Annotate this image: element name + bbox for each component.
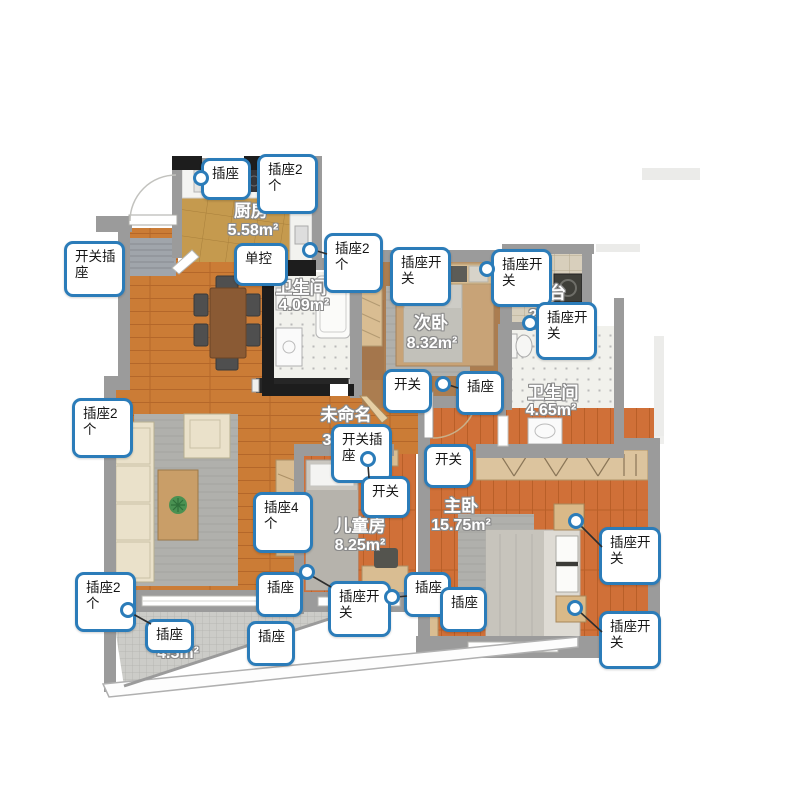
anchor-dot-3[interactable]: [481, 263, 494, 276]
callout-4-单控[interactable]: 单控: [234, 243, 288, 286]
callout-19-插座开关[interactable]: 插座开关: [328, 581, 391, 637]
callout-9-开关[interactable]: 开关: [383, 369, 432, 413]
callout-16-插座开关[interactable]: 插座开关: [599, 527, 661, 585]
callout-12-开关插座[interactable]: 开关插座: [331, 424, 392, 483]
callout-6-插座开关[interactable]: 插座开关: [390, 247, 451, 306]
callout-23-插座[interactable]: 插座: [256, 572, 303, 617]
anchor-dot-5[interactable]: [437, 378, 450, 391]
callout-5-插座2个[interactable]: 插座2个: [324, 233, 383, 293]
callout-13-开关[interactable]: 开关: [361, 476, 410, 518]
electrical-callouts: 插座插座2个开关插座单控插座2个插座开关插座开关插座开关开关插座插座2个开关插座…: [0, 0, 800, 800]
callout-21-插座[interactable]: 插座: [145, 619, 194, 653]
callout-24-插座开关[interactable]: 插座开关: [599, 611, 661, 669]
callout-20-插座2个[interactable]: 插座2个: [75, 572, 136, 632]
callout-2-插座2个[interactable]: 插座2个: [257, 154, 318, 214]
anchor-dot-6[interactable]: [362, 453, 375, 466]
callout-15-插座4个[interactable]: 插座4个: [253, 492, 313, 553]
callout-10-插座[interactable]: 插座: [456, 371, 504, 415]
callout-18-插座[interactable]: 插座: [440, 587, 487, 632]
floorplan-canvas: 厨房5.58m²卫生间4.09m²次卧8.32m²阳台2卫生间4.65m²未命名…: [0, 0, 800, 800]
anchor-dot-9[interactable]: [570, 515, 583, 528]
callout-7-插座开关[interactable]: 插座开关: [491, 249, 552, 307]
callout-3-开关插座[interactable]: 开关插座: [64, 241, 125, 297]
callout-14-开关[interactable]: 开关: [424, 444, 473, 488]
callout-8-插座开关[interactable]: 插座开关: [536, 302, 597, 360]
callout-22-插座[interactable]: 插座: [247, 621, 295, 666]
anchor-dot-10[interactable]: [569, 602, 582, 615]
anchor-dot-4[interactable]: [524, 317, 537, 330]
anchor-dot-8[interactable]: [386, 591, 399, 604]
anchor-dot-11[interactable]: [122, 604, 135, 617]
anchor-dot-1[interactable]: [195, 172, 208, 185]
anchor-dot-7[interactable]: [301, 566, 314, 579]
anchor-dot-2[interactable]: [304, 244, 317, 257]
callout-11-插座2个[interactable]: 插座2个: [72, 398, 133, 458]
